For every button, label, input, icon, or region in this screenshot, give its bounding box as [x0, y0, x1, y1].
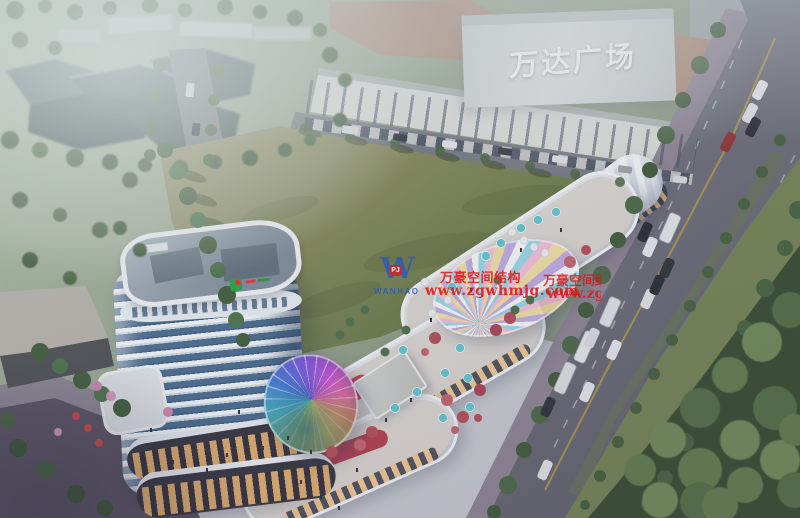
watermark-fragment-url: www.zgwhmjg [547, 286, 601, 302]
watermark-logo-name: WANHAO [374, 287, 419, 296]
logo-text-mark [257, 278, 269, 282]
aerial-rendering-scene: 万达广场 [0, 0, 800, 518]
watermark-logo-badge-icon: PJ [390, 265, 401, 276]
logo-text-mark [246, 279, 256, 283]
logo-square-icon [229, 278, 242, 291]
watermark-fragment: 万豪空间结构 www.zgwhmjg [541, 268, 601, 302]
